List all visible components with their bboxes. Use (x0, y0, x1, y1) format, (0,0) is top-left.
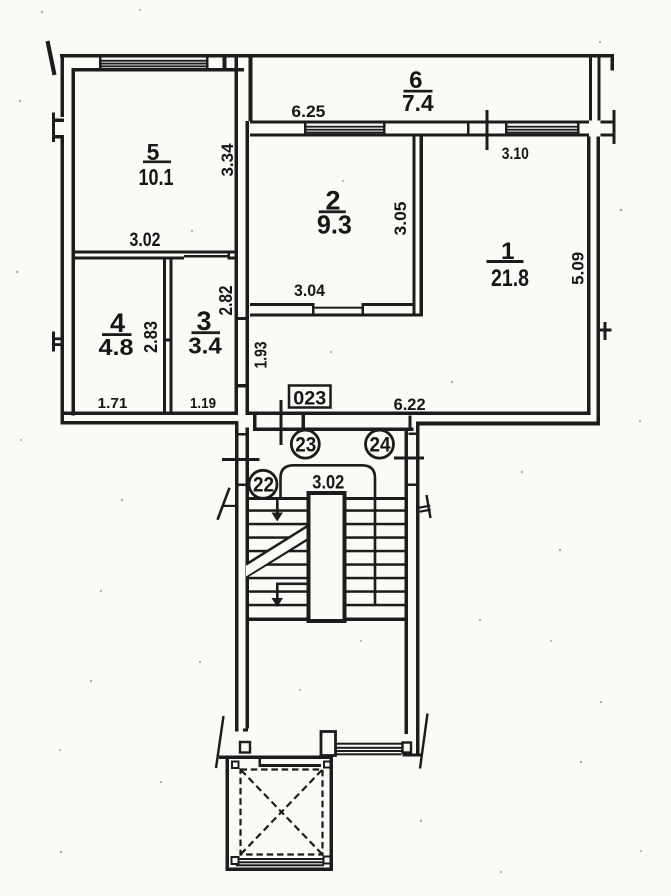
svg-text:23: 23 (295, 434, 316, 457)
svg-text:3.10: 3.10 (502, 144, 529, 163)
svg-text:3.02: 3.02 (312, 472, 344, 494)
svg-text:9.3: 9.3 (317, 212, 352, 240)
svg-text:3.05: 3.05 (391, 202, 410, 236)
svg-text:1.19: 1.19 (190, 395, 216, 412)
svg-text:2.83: 2.83 (141, 321, 161, 353)
svg-text:6.25: 6.25 (291, 102, 325, 121)
svg-text:4.8: 4.8 (99, 334, 134, 360)
svg-text:1.71: 1.71 (98, 395, 128, 412)
svg-text:10.1: 10.1 (139, 164, 174, 190)
svg-text:6.22: 6.22 (394, 396, 426, 414)
svg-text:3.02: 3.02 (130, 229, 161, 251)
svg-text:023: 023 (293, 388, 326, 410)
svg-text:1.93: 1.93 (251, 341, 271, 368)
svg-text:2.82: 2.82 (216, 286, 236, 316)
svg-text:22: 22 (253, 474, 274, 497)
svg-text:7.4: 7.4 (402, 90, 434, 116)
svg-text:3.34: 3.34 (218, 143, 237, 177)
svg-text:21.8: 21.8 (491, 265, 529, 292)
svg-text:5.09: 5.09 (570, 252, 588, 285)
svg-text:3.04: 3.04 (294, 281, 326, 300)
svg-text:3.4: 3.4 (188, 333, 222, 359)
svg-text:24: 24 (370, 434, 391, 457)
